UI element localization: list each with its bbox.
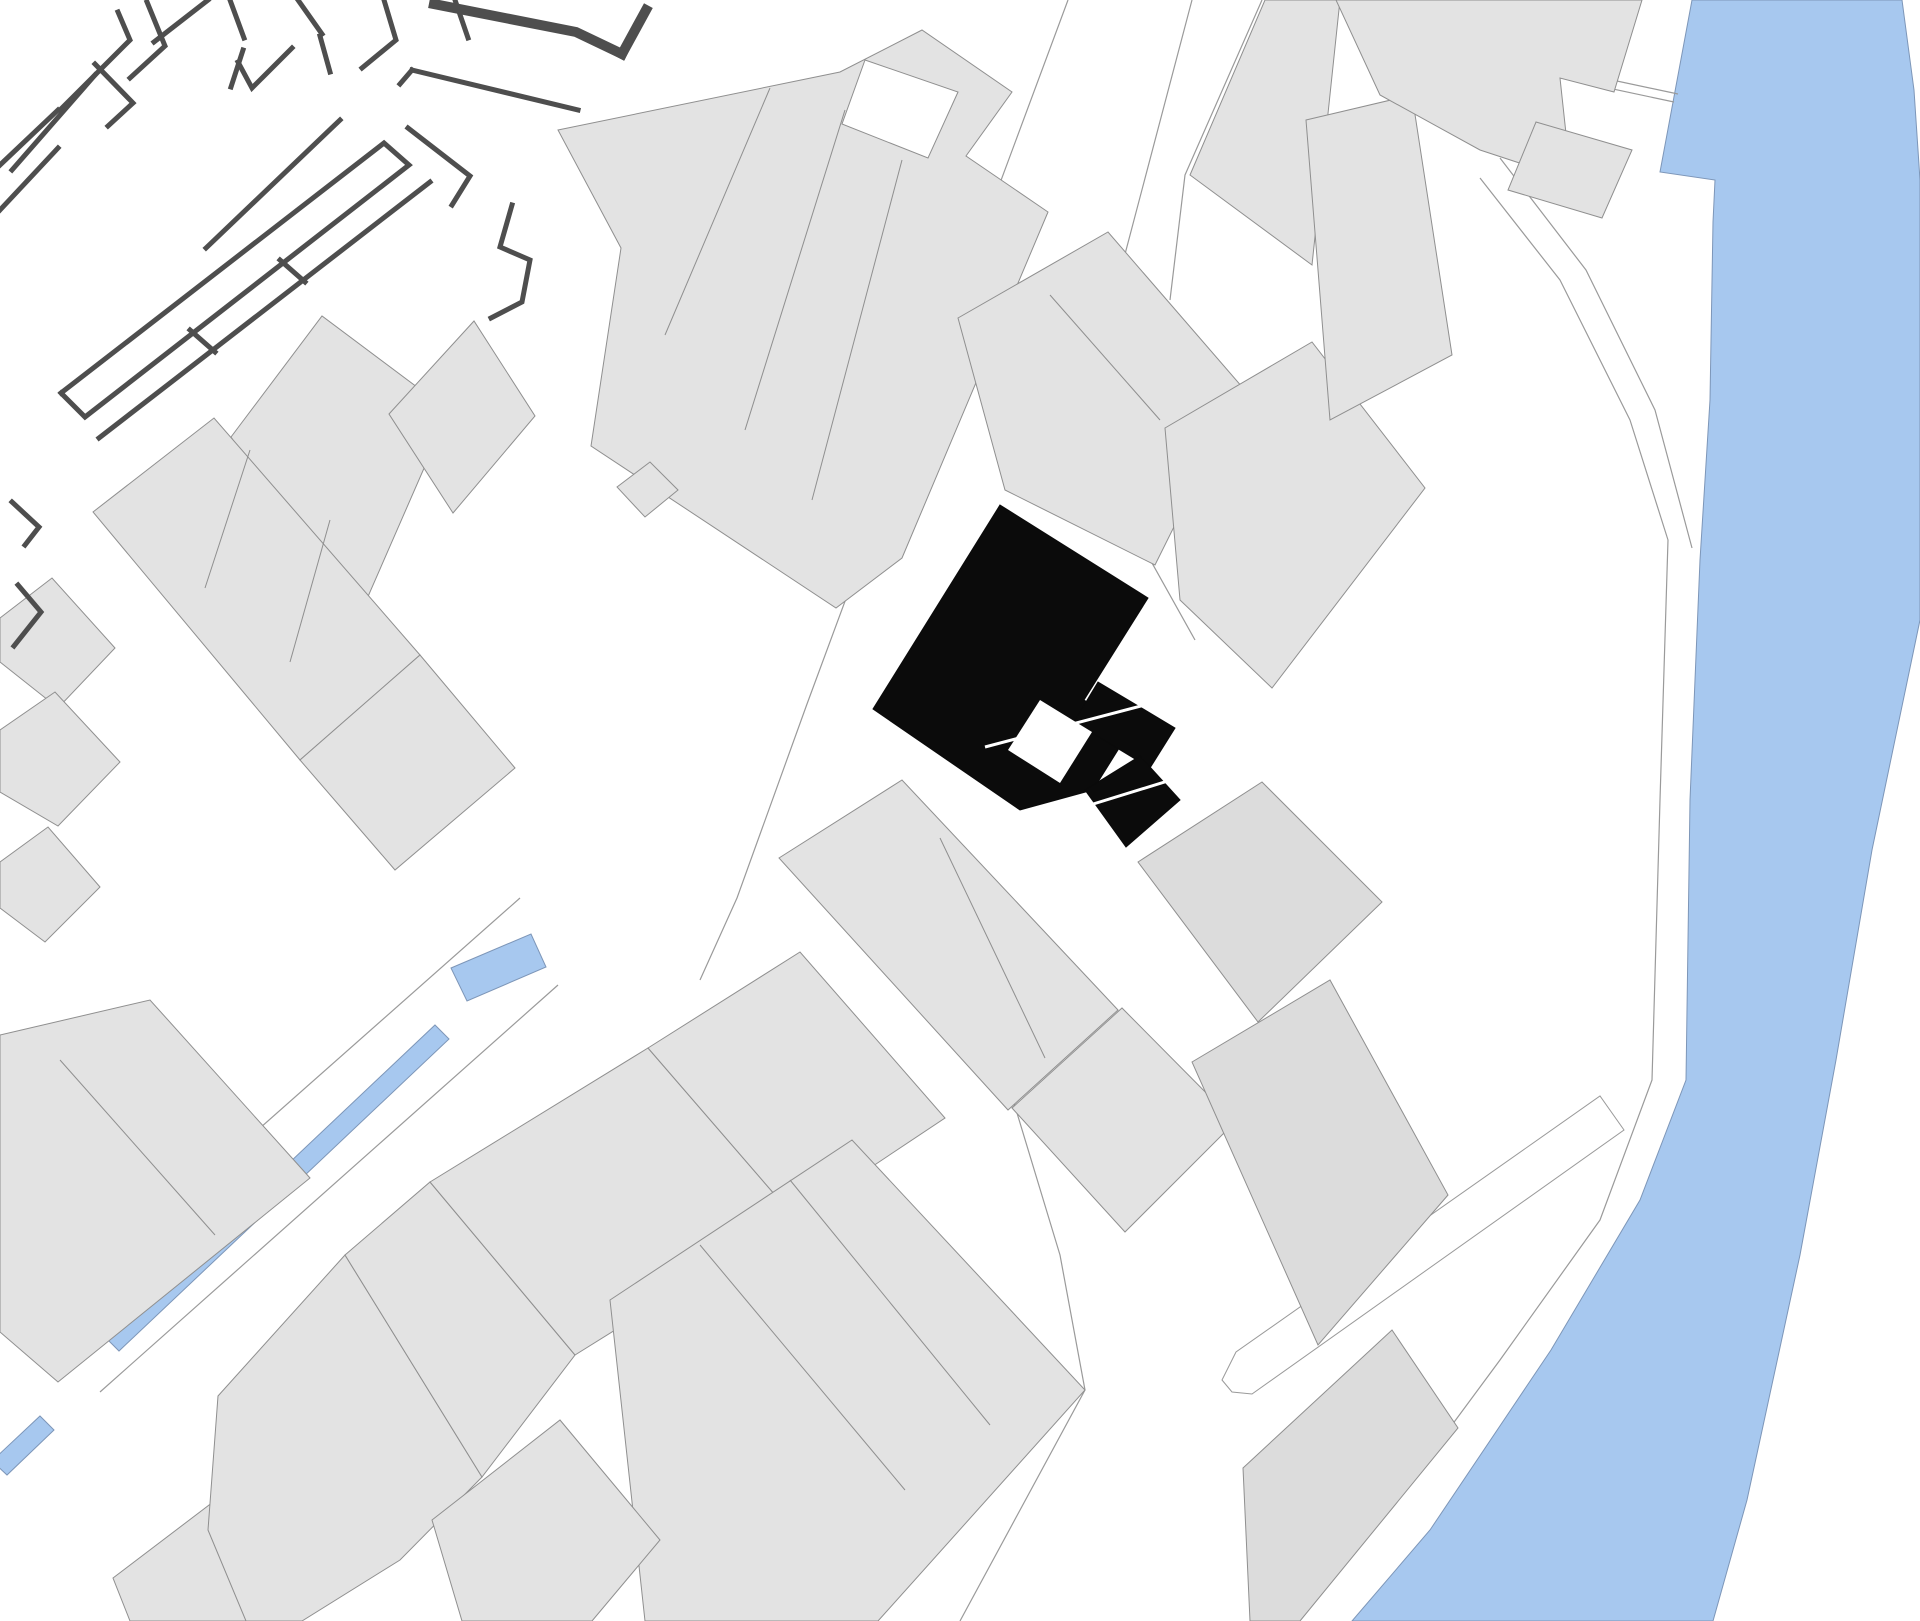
historic-wall-line	[400, 70, 412, 84]
historic-wall-line	[434, 4, 622, 54]
canal-segment	[0, 1416, 54, 1475]
historic-wall-line	[12, 502, 39, 545]
historic-wall-line	[154, 0, 208, 42]
historic-wall-line	[95, 64, 133, 126]
site-plan-canvas	[0, 0, 1920, 1621]
historic-wall-line	[190, 330, 215, 352]
historic-wall-line	[412, 70, 578, 110]
historic-wall-line	[491, 205, 530, 318]
historic-wall-line	[622, 10, 646, 54]
historic-wall-line	[280, 260, 305, 282]
historic-wall-line	[298, 0, 322, 34]
building-parcel	[1138, 782, 1382, 1022]
building-parcel	[1192, 980, 1448, 1345]
building-parcel	[0, 827, 100, 942]
historic-wall-line	[238, 48, 292, 88]
canal-segment	[451, 934, 546, 1001]
building-parcel	[1306, 95, 1452, 420]
historic-wall-line	[320, 36, 330, 72]
historic-wall-line	[230, 0, 244, 38]
building-parcel	[0, 1000, 310, 1382]
historic-wall-line	[362, 0, 396, 68]
building-parcel	[0, 692, 120, 826]
river	[1352, 0, 1920, 1621]
site-plan-map	[0, 0, 1920, 1621]
site-building-mass	[873, 505, 1148, 810]
